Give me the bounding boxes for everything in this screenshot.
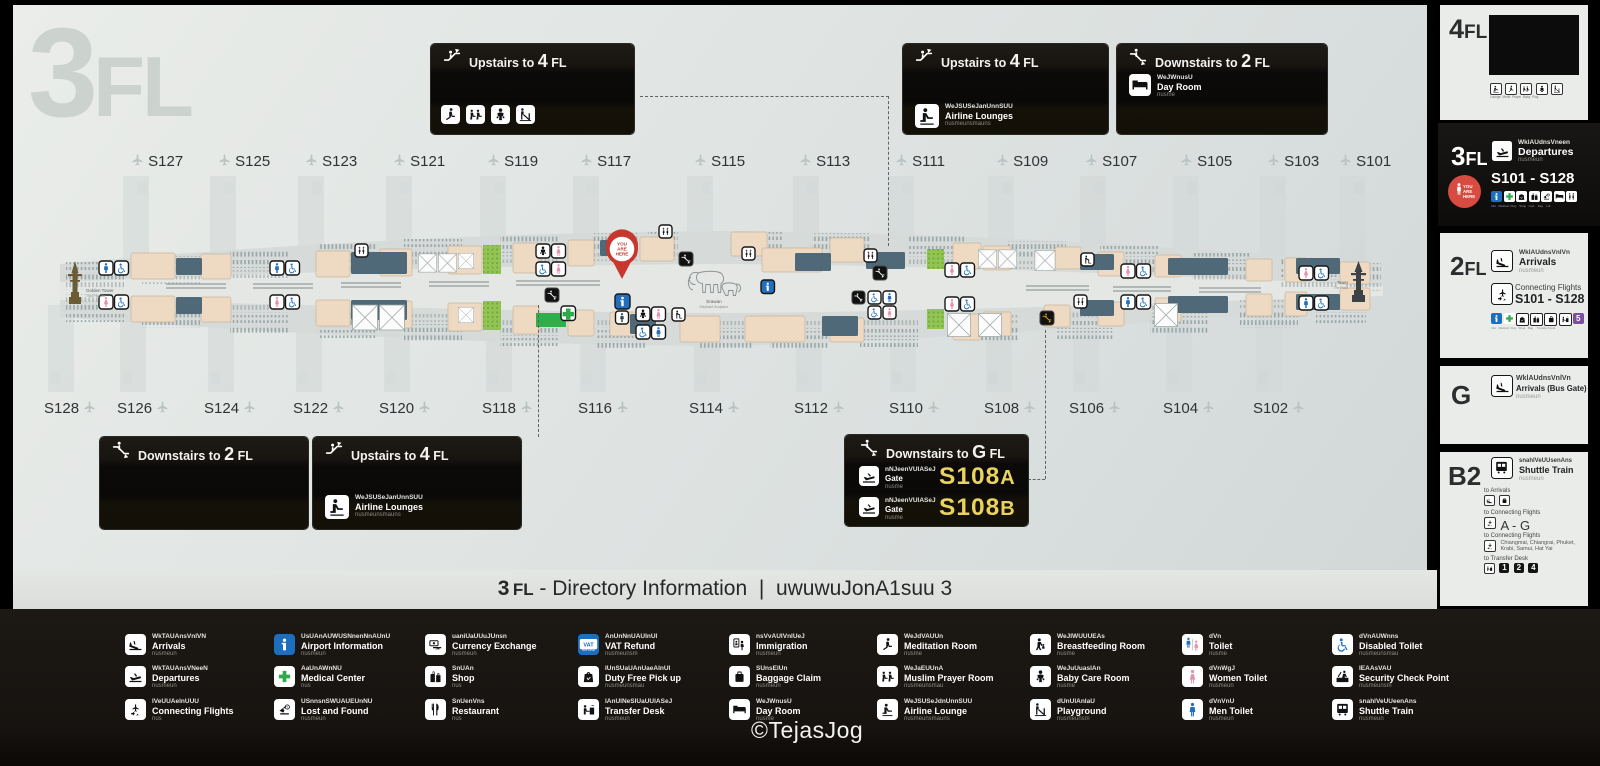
svg-text:REFUND: REFUND [582, 648, 596, 652]
svg-text:HERE: HERE [616, 252, 629, 257]
svg-text:Thai Pagoda: Thai Pagoda [86, 294, 105, 298]
svg-text:The Plaza: The Plaza [1334, 286, 1349, 290]
svg-text:Elephant Sculpture: Elephant Sculpture [700, 305, 729, 309]
svg-text:Golden Tower: Golden Tower [86, 288, 114, 293]
svg-text:Tower: Tower [1337, 280, 1349, 285]
svg-text:Erawan: Erawan [706, 299, 722, 304]
